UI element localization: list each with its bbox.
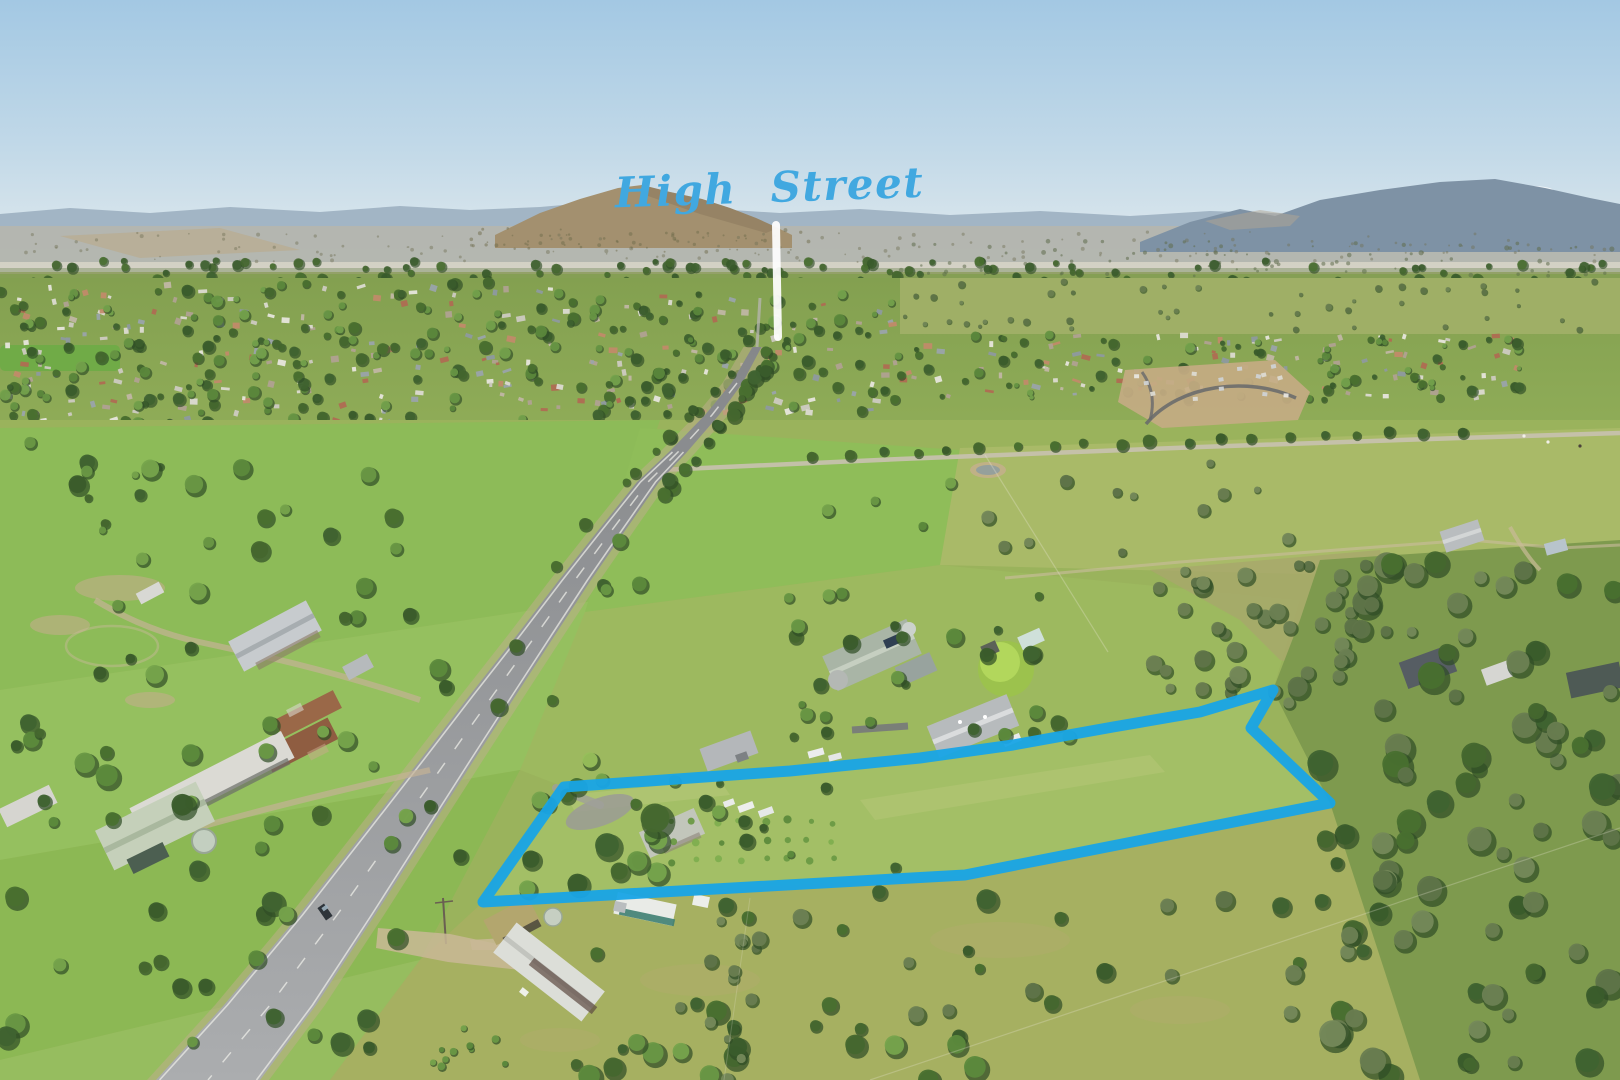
cattle bbox=[1522, 434, 1525, 437]
water-tank bbox=[192, 829, 216, 853]
street-arrow bbox=[776, 225, 778, 337]
aerial-photo: High Street bbox=[0, 0, 1620, 1080]
township bbox=[0, 277, 1620, 440]
new-subdivision bbox=[1118, 360, 1310, 428]
pond bbox=[970, 462, 1006, 478]
aerial-photo-svg: High Street bbox=[0, 0, 1620, 1080]
